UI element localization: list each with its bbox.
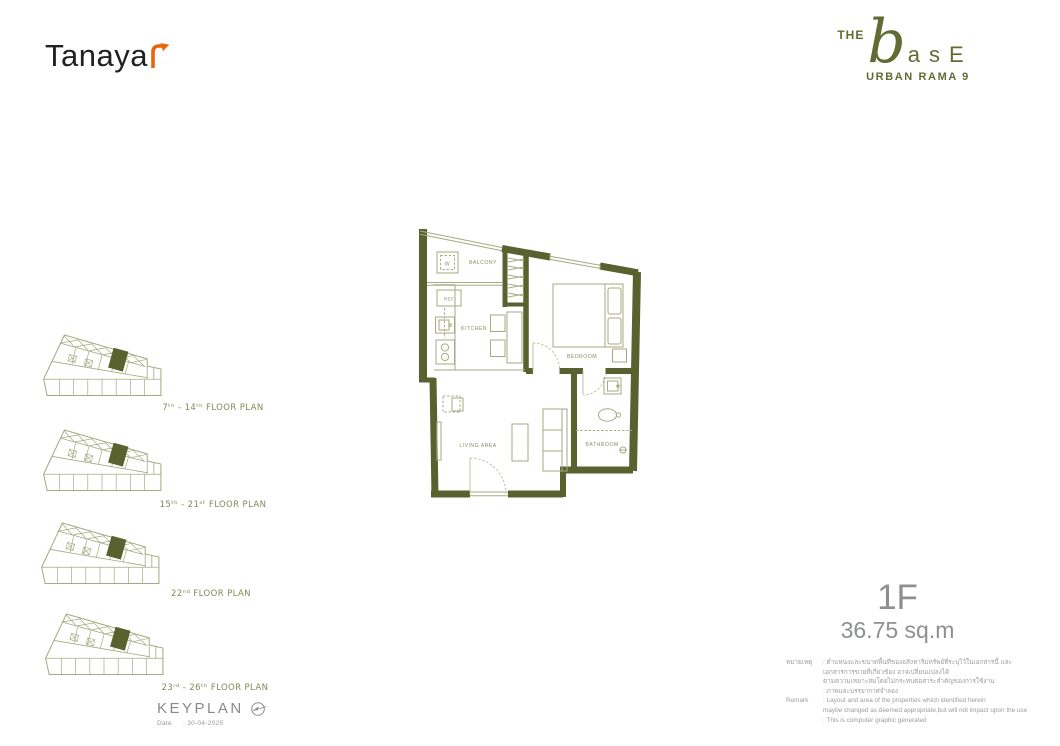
project-logo-subtitle: URBAN RAMA 9 xyxy=(812,71,998,83)
toilet xyxy=(599,409,617,421)
remark-th-line1: : ตำแหน่งและขนาดพื้นที่ของอสังหาริมทรัพย… xyxy=(823,658,1031,677)
project-logo-b: b xyxy=(867,14,905,71)
project-logo-ase: asE xyxy=(908,42,973,68)
dining-table xyxy=(507,312,522,363)
keyplan-label: 15ᵗʰ - 21ˢᵗ FLOOR PLAN xyxy=(138,500,288,510)
keyplan-label: 22ⁿᵈ FLOOR PLAN xyxy=(136,589,286,599)
keyplan-7-14: 7ᵗʰ - 14ᵗʰ FLOOR PLAN xyxy=(42,333,162,402)
bathroom-label: BATHROOM xyxy=(585,442,618,448)
keyplan-22: 22ⁿᵈ FLOOR PLAN xyxy=(40,521,160,590)
unit-area: 36.75 sq.m xyxy=(800,617,995,645)
bedroom-label: BEDROOM xyxy=(567,354,597,360)
keyplan-23-26: 23ʳᵈ - 26ᵗʰ FLOOR PLAN xyxy=(44,612,164,681)
compass-icon xyxy=(250,701,267,717)
kitchen-label: KITCHEN xyxy=(461,326,487,332)
unit-info: 1F 36.75 sq.m xyxy=(800,580,995,644)
keyplan-diagram xyxy=(44,612,164,676)
keyplan-diagram xyxy=(40,521,160,585)
unit-type: 1F xyxy=(800,580,995,617)
keyplan-15-21: 15ᵗʰ - 21ˢᵗ FLOOR PLAN xyxy=(42,428,162,497)
chair xyxy=(491,315,506,332)
keyplan-label: 7ᵗʰ - 14ᵗʰ FLOOR PLAN xyxy=(138,403,288,413)
date-value: : 30-04-2025 xyxy=(183,720,223,727)
nightstand xyxy=(613,349,627,362)
coffee-table xyxy=(512,424,528,461)
sofa xyxy=(543,409,567,471)
keyplan-diagram xyxy=(42,428,162,492)
remark-en-line3: : This is computer graphic generated xyxy=(823,716,1031,726)
keyplan-label: 23ʳᵈ - 26ᵗʰ FLOOR PLAN xyxy=(140,683,290,693)
pillow xyxy=(608,288,621,314)
project-logo-the: THE xyxy=(837,28,864,42)
living-area-label: LIVING AREA xyxy=(459,443,496,449)
washer-label: W xyxy=(445,262,450,268)
living-furniture xyxy=(437,396,567,471)
remark-th-line3: : ภาพและบรรยากาศจำลอง xyxy=(823,687,1031,697)
keyplan-diagram xyxy=(42,333,162,397)
keyplan-title: KEYPLAN xyxy=(157,700,244,717)
pillow xyxy=(608,318,621,344)
keyplan-footer: KEYPLAN Date : 30-04-2025 xyxy=(157,700,267,727)
tanayar-wordmark: Tanaya xyxy=(45,40,148,71)
tanayar-arrow-icon xyxy=(149,41,171,71)
tanayar-logo: Tanaya xyxy=(45,40,171,71)
floorplan-sheet: Tanaya THE b asE URBAN RAMA 9 xyxy=(0,0,1060,746)
remarks: หมายเหตุ: ตำแหน่งและขนาดพื้นที่ของอสังหา… xyxy=(786,658,1031,725)
ref-label: REF xyxy=(444,297,455,302)
project-logo: THE b asE URBAN RAMA 9 xyxy=(812,16,998,83)
wardrobe xyxy=(508,258,524,297)
remark-en-label: Remark xyxy=(786,696,823,706)
date-label: Date xyxy=(157,720,183,727)
dining-set xyxy=(491,312,523,363)
floor-plan: W BALCONY REF KITCHEN BEDROOM LIVING ARE… xyxy=(406,220,651,512)
remark-th-line2: ตามความเหมาะสมโดยไม่กระทบต่อสาระสำคัญของ… xyxy=(823,677,1031,687)
remark-en-line1: : Layout and area of the properties whic… xyxy=(823,696,1031,706)
remark-en-line2: maybe changed as deemed appropriate,but … xyxy=(823,706,1031,716)
chair xyxy=(491,340,506,357)
bed xyxy=(553,284,627,362)
remark-th-label: หมายเหตุ xyxy=(786,658,823,677)
balcony-label: BALCONY xyxy=(469,260,497,266)
